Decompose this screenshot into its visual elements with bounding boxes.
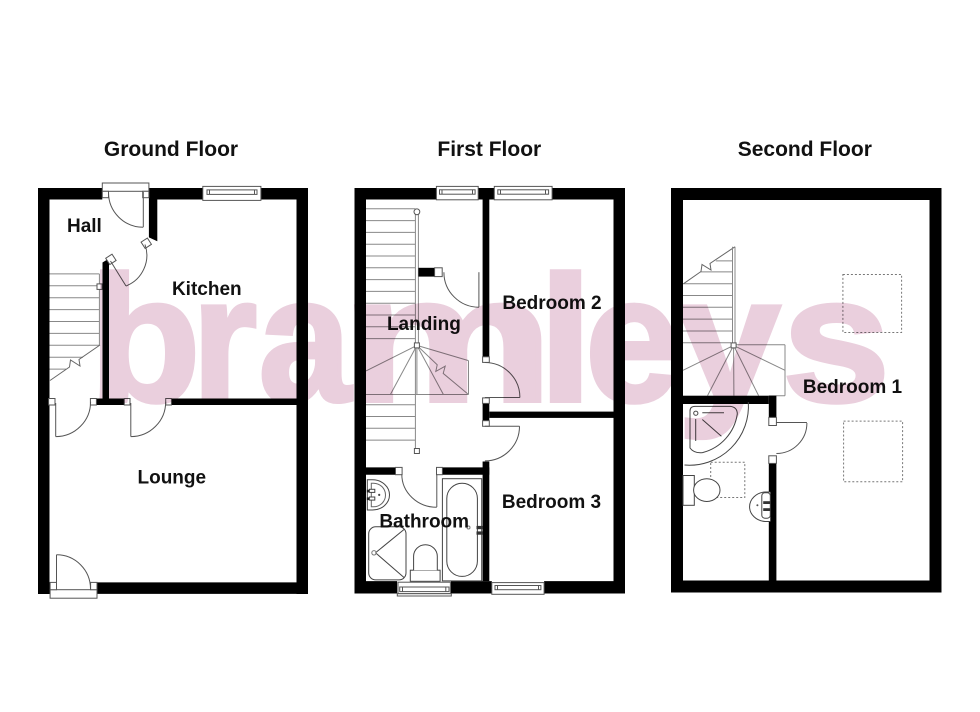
svg-text:Second Floor: Second Floor [738, 138, 872, 161]
svg-text:a: a [259, 239, 353, 439]
svg-text:Bathroom: Bathroom [379, 512, 469, 533]
svg-text:y: y [677, 239, 780, 439]
svg-text:Bedroom 3: Bedroom 3 [502, 492, 601, 513]
svg-text:b: b [89, 239, 200, 439]
svg-text:s: s [782, 239, 890, 439]
svg-text:r: r [192, 239, 257, 439]
svg-text:m: m [341, 239, 553, 439]
svg-text:Hall: Hall [67, 216, 102, 237]
svg-text:First Floor: First Floor [437, 138, 541, 161]
svg-text:Ground Floor: Ground Floor [104, 138, 238, 161]
svg-text:Lounge: Lounge [137, 468, 206, 489]
svg-text:e: e [585, 240, 680, 439]
